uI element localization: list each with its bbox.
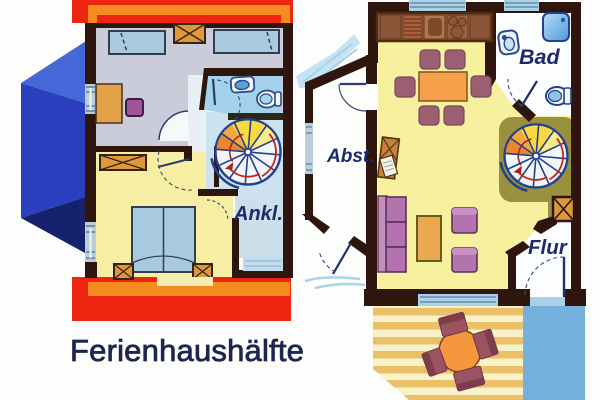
svg-text:Ferienhaushälfte: Ferienhaushälfte	[70, 333, 304, 368]
svg-text:Flur: Flur	[528, 236, 568, 259]
svg-text:Bad: Bad	[519, 45, 560, 69]
svg-text:Ankl.: Ankl.	[233, 203, 283, 225]
svg-text:Abst.: Abst.	[326, 146, 375, 167]
